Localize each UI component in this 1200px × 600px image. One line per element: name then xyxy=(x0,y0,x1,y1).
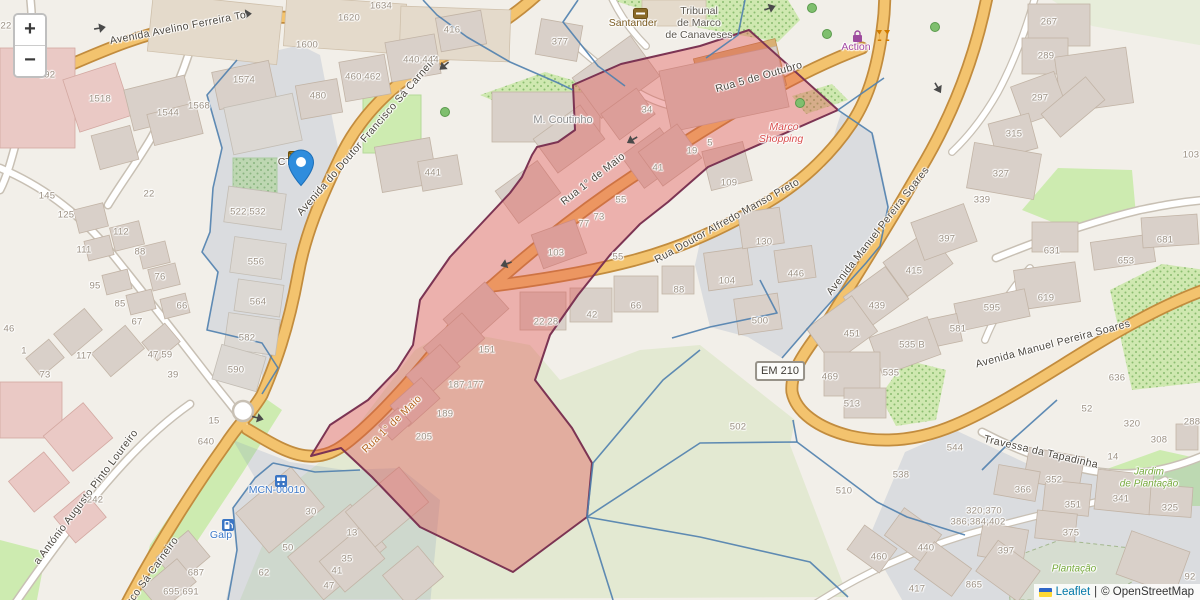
building xyxy=(535,19,583,62)
building xyxy=(774,246,816,283)
building xyxy=(138,241,170,269)
building xyxy=(224,186,286,230)
attribution-separator: | xyxy=(1094,586,1097,598)
ukraine-flag-icon xyxy=(1039,588,1052,597)
openstreetmap-link[interactable]: © OpenStreetMap xyxy=(1101,586,1194,598)
building xyxy=(234,279,284,317)
building xyxy=(738,207,785,248)
building xyxy=(126,289,156,315)
tree-icon xyxy=(441,108,450,117)
zoom-in-button[interactable]: + xyxy=(15,15,45,46)
building xyxy=(642,0,706,26)
junction-circle xyxy=(233,401,253,421)
building xyxy=(54,308,103,355)
building xyxy=(230,237,287,280)
building xyxy=(1149,485,1193,518)
building xyxy=(9,452,70,512)
building xyxy=(148,263,180,291)
building xyxy=(102,269,132,295)
building xyxy=(844,388,886,418)
attribution-bar: Leaflet | © OpenStreetMap xyxy=(1034,584,1200,600)
building xyxy=(385,34,441,82)
oneway-arrow-icon xyxy=(94,24,105,32)
building xyxy=(26,339,64,377)
building xyxy=(1042,480,1091,517)
building xyxy=(160,293,190,319)
building xyxy=(662,266,694,294)
building xyxy=(1094,469,1154,515)
building xyxy=(74,203,109,234)
building xyxy=(1032,222,1078,252)
building xyxy=(967,142,1042,199)
building xyxy=(1035,510,1078,542)
tree-icon xyxy=(808,4,817,13)
building xyxy=(1141,214,1199,248)
building xyxy=(295,79,342,120)
route-badge-em210: EM 210 xyxy=(755,361,805,381)
oneway-arrow-icon xyxy=(932,81,943,93)
zoom-out-button[interactable]: − xyxy=(15,46,45,76)
tree-icon xyxy=(796,99,805,108)
zoom-control: + − xyxy=(13,13,47,78)
map-vector-layer xyxy=(0,0,1200,600)
building xyxy=(339,54,391,101)
tree-icon xyxy=(823,30,832,39)
building xyxy=(704,247,753,291)
building xyxy=(418,155,463,191)
tree-icon xyxy=(931,23,940,32)
building xyxy=(614,276,658,312)
building xyxy=(110,221,145,252)
map-canvas[interactable]: Avenida Avelino Ferreira ToAvenida do Do… xyxy=(0,0,1200,600)
building xyxy=(1176,424,1198,450)
leaflet-link[interactable]: Leaflet xyxy=(1056,586,1091,598)
building xyxy=(147,0,282,65)
building xyxy=(92,325,145,376)
